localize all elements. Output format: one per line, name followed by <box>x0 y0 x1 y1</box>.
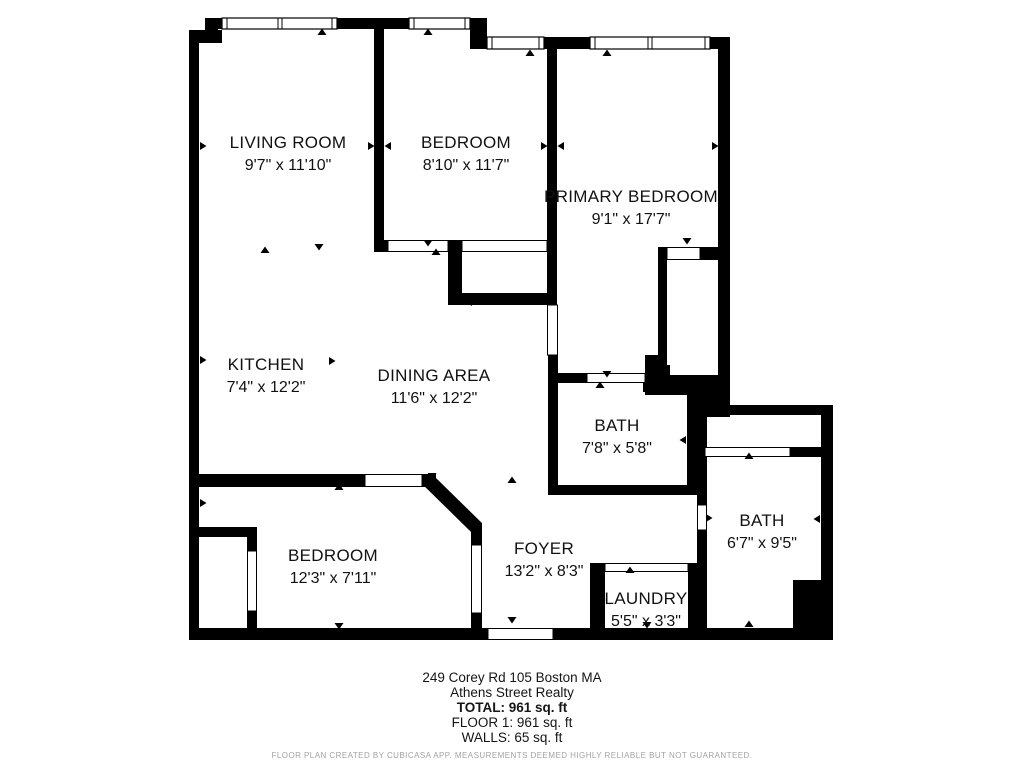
floor-plan-page: LIVING ROOM 9'7" x 11'10" BEDROOM 8'10" … <box>0 0 1024 768</box>
room-name: KITCHEN <box>227 355 306 375</box>
footer: 249 Corey Rd 105 Boston MA Athens Street… <box>0 670 1024 760</box>
room-name: LAUNDRY <box>604 589 687 609</box>
room-dimensions: 8'10" x 11'7" <box>421 157 511 175</box>
room-dimensions: 5'5" x 3'3" <box>604 613 687 631</box>
room-dimensions: 11'6" x 12'2" <box>378 390 491 408</box>
room-dimensions: 7'4" x 12'2" <box>227 379 306 397</box>
room-label-foyer: FOYER 13'2" x 8'3" <box>505 539 584 581</box>
room-name: BEDROOM <box>288 546 378 566</box>
room-label-dining-area: DINING AREA 11'6" x 12'2" <box>378 366 491 408</box>
footer-address: 249 Corey Rd 105 Boston MA <box>0 670 1024 685</box>
diagonal-wall <box>426 478 477 528</box>
room-name: BATH <box>582 416 652 436</box>
footer-walls-area: WALLS: 65 sq. ft <box>0 730 1024 745</box>
room-label-bath-right: BATH 6'7" x 9'5" <box>727 511 797 553</box>
room-label-living-room: LIVING ROOM 9'7" x 11'10" <box>230 133 347 175</box>
room-dimensions: 6'7" x 9'5" <box>727 535 797 553</box>
room-name: LIVING ROOM <box>230 133 347 153</box>
room-dimensions: 7'8" x 5'8" <box>582 440 652 458</box>
room-label-primary-bedroom: PRIMARY BEDROOM 9'1" x 17'7" <box>544 187 718 229</box>
room-dimensions: 9'7" x 11'10" <box>230 157 347 175</box>
room-dimensions: 12'3" x 7'11" <box>288 570 378 588</box>
room-name: DINING AREA <box>378 366 491 386</box>
room-name: FOYER <box>505 539 584 559</box>
room-label-kitchen: KITCHEN 7'4" x 12'2" <box>227 355 306 397</box>
room-label-bedroom-top: BEDROOM 8'10" x 11'7" <box>421 133 511 175</box>
room-dimensions: 9'1" x 17'7" <box>544 211 718 229</box>
room-name: BEDROOM <box>421 133 511 153</box>
room-label-bedroom-bottom: BEDROOM 12'3" x 7'11" <box>288 546 378 588</box>
footer-floor-area: FLOOR 1: 961 sq. ft <box>0 715 1024 730</box>
windows <box>222 18 710 49</box>
room-dimensions: 13'2" x 8'3" <box>505 563 584 581</box>
footer-company: Athens Street Realty <box>0 685 1024 700</box>
room-name: BATH <box>727 511 797 531</box>
room-label-laundry: LAUNDRY 5'5" x 3'3" <box>604 589 687 631</box>
footer-total-area: TOTAL: 961 sq. ft <box>0 700 1024 715</box>
room-label-bath-small: BATH 7'8" x 5'8" <box>582 416 652 458</box>
room-name: PRIMARY BEDROOM <box>544 187 718 207</box>
footer-disclaimer: FLOOR PLAN CREATED BY CUBICASA APP. MEAS… <box>0 751 1024 760</box>
floor-plan-drawing <box>0 0 1024 768</box>
